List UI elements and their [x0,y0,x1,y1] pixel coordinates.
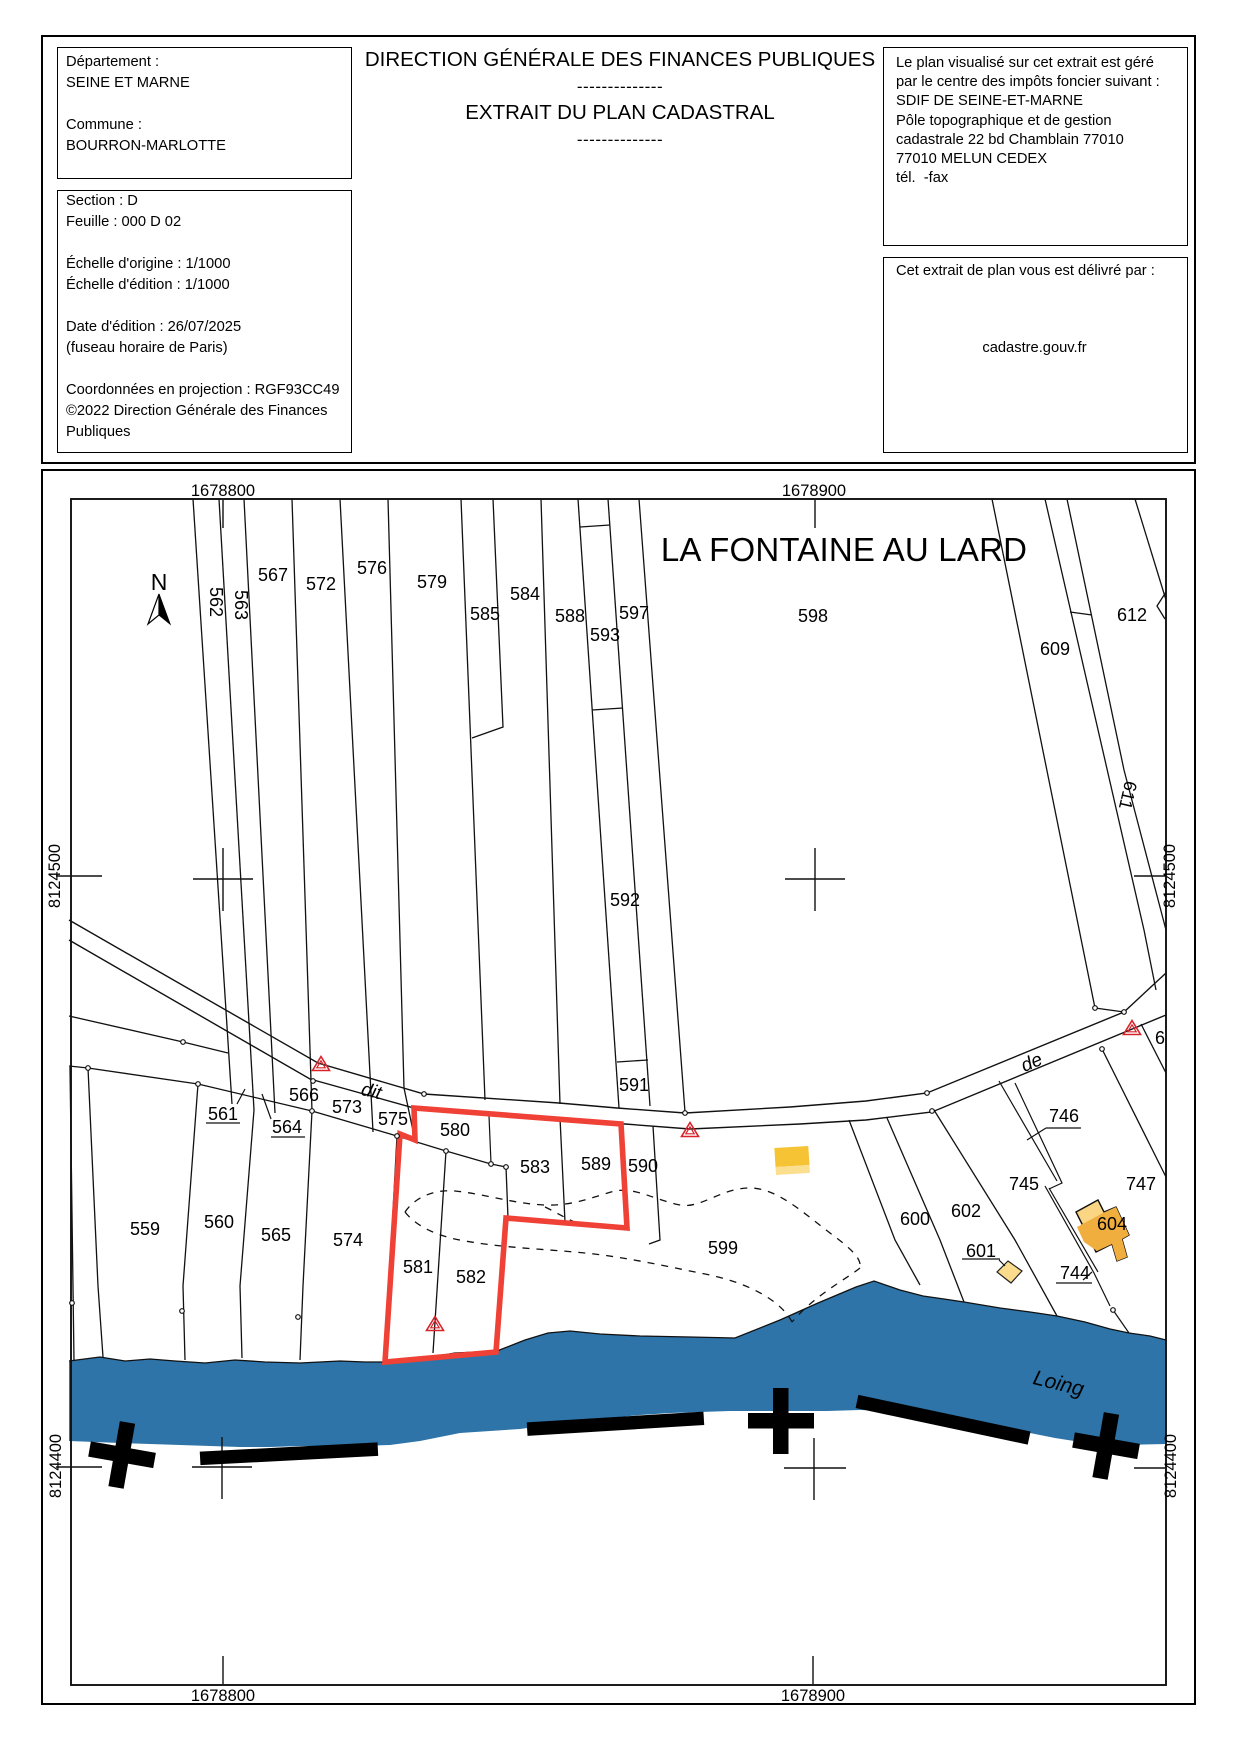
svg-text:1678900: 1678900 [781,1687,845,1705]
svg-text:N: N [151,569,168,595]
svg-text:597: 597 [619,603,649,623]
svg-text:609: 609 [1040,639,1070,659]
svg-text:8124400: 8124400 [1162,1434,1180,1498]
svg-text:560: 560 [204,1212,234,1232]
svg-text:581: 581 [403,1257,433,1277]
svg-text:8124400: 8124400 [47,1434,65,1498]
svg-text:565: 565 [261,1225,291,1245]
svg-text:585: 585 [470,604,500,624]
svg-text:583: 583 [520,1157,550,1177]
svg-text:559: 559 [130,1219,160,1239]
svg-text:601: 601 [966,1241,996,1261]
svg-text:563: 563 [231,590,251,620]
svg-text:745: 745 [1009,1174,1039,1194]
svg-text:562: 562 [206,587,226,617]
svg-text:574: 574 [333,1230,363,1250]
svg-text:LA FONTAINE AU LARD: LA FONTAINE AU LARD [661,531,1027,568]
svg-text:602: 602 [951,1201,981,1221]
svg-text:566: 566 [289,1085,319,1105]
svg-text:747: 747 [1126,1174,1156,1194]
svg-text:598: 598 [798,606,828,626]
svg-text:575: 575 [378,1109,408,1129]
svg-text:572: 572 [306,574,336,594]
svg-text:604: 604 [1097,1214,1127,1234]
svg-text:dit: dit [359,1079,384,1104]
svg-text:6: 6 [1155,1028,1165,1048]
svg-text:576: 576 [357,558,387,578]
svg-text:611: 611 [1115,779,1141,811]
svg-text:584: 584 [510,584,540,604]
svg-text:590: 590 [628,1156,658,1176]
svg-text:1678900: 1678900 [782,482,846,500]
svg-text:8124500: 8124500 [1161,844,1179,908]
svg-text:8124500: 8124500 [46,844,64,908]
svg-text:589: 589 [581,1154,611,1174]
svg-text:744: 744 [1060,1263,1090,1283]
svg-text:582: 582 [456,1267,486,1287]
svg-text:612: 612 [1117,605,1147,625]
svg-text:573: 573 [332,1097,362,1117]
svg-text:588: 588 [555,606,585,626]
svg-text:593: 593 [590,625,620,645]
svg-text:591: 591 [619,1075,649,1095]
svg-text:567: 567 [258,565,288,585]
svg-text:564: 564 [272,1117,302,1137]
svg-text:1678800: 1678800 [191,482,255,500]
svg-text:600: 600 [900,1209,930,1229]
svg-text:592: 592 [610,890,640,910]
svg-text:1678800: 1678800 [191,1687,255,1705]
svg-text:579: 579 [417,572,447,592]
svg-text:580: 580 [440,1120,470,1140]
svg-text:561: 561 [208,1104,238,1124]
svg-text:599: 599 [708,1238,738,1258]
svg-text:746: 746 [1049,1106,1079,1126]
